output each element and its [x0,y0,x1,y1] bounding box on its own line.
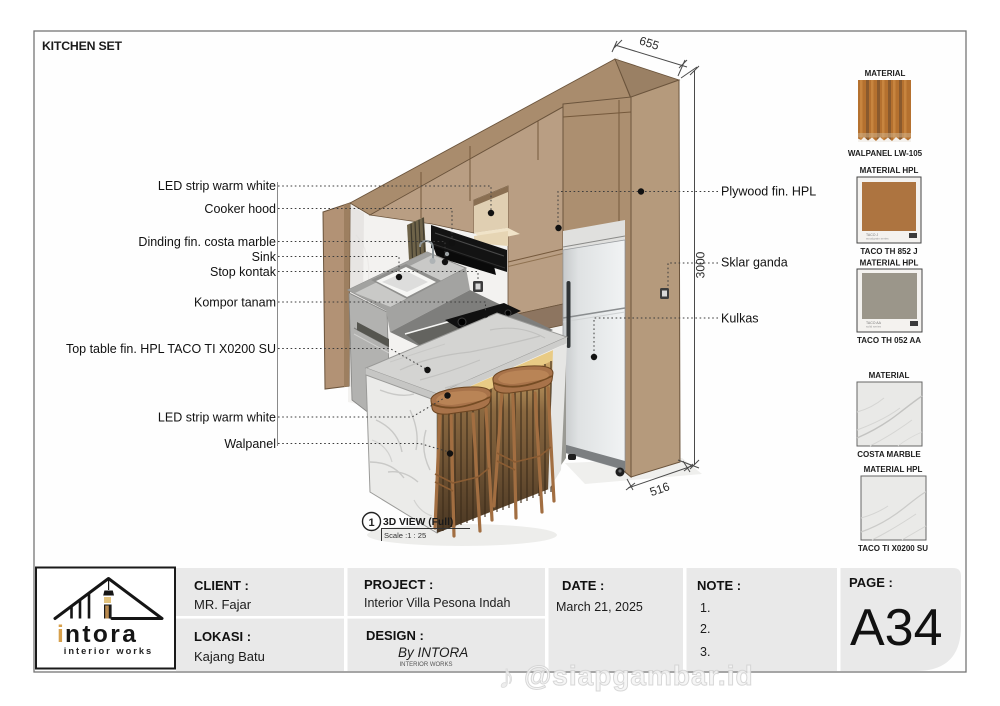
svg-text:Dinding fin. costa marble: Dinding fin. costa marble [138,235,276,249]
svg-text:PROJECT :: PROJECT : [364,577,433,592]
svg-text:A34: A34 [850,599,943,657]
svg-text:Scale :1 : 25: Scale :1 : 25 [384,531,426,540]
svg-text:By INTORA: By INTORA [398,645,468,660]
svg-text:3D VIEW (Full): 3D VIEW (Full) [383,517,453,528]
svg-text:Interior Villa Pesona Indah: Interior Villa Pesona Indah [364,596,510,610]
svg-text:DESIGN :: DESIGN : [366,628,424,643]
svg-text:PAGE :: PAGE : [849,575,893,590]
svg-text:Top table fin. HPL TACO TI X02: Top table fin. HPL TACO TI X0200 SU [66,342,276,356]
svg-text:KITCHEN SET: KITCHEN SET [42,39,122,53]
svg-text:i: i [57,621,64,648]
svg-text:Sink: Sink [252,250,277,264]
svg-text:TACO TI X0200 SU: TACO TI X0200 SU [858,544,928,553]
svg-text:INTERIOR WORKS: INTERIOR WORKS [399,662,452,668]
svg-text:Cooker hood: Cooker hood [204,202,276,216]
svg-text:interior works: interior works [64,646,153,656]
svg-text:Walpanel: Walpanel [224,437,276,451]
svg-text:CLIENT :: CLIENT : [194,578,249,593]
svg-text:@siapgambar.id: @siapgambar.id [524,660,754,691]
svg-text:WALPANEL LW-105: WALPANEL LW-105 [848,149,923,158]
svg-text:NOTE :: NOTE : [697,578,741,593]
svg-text:Kulkas: Kulkas [721,312,759,326]
svg-text:DATE :: DATE : [562,578,604,593]
svg-text:COSTA MARBLE: COSTA MARBLE [857,450,921,459]
svg-text:Stop kontak: Stop kontak [210,265,277,279]
svg-text:MATERIAL HPL: MATERIAL HPL [864,465,923,474]
svg-text:♪: ♪ [498,658,515,696]
svg-text:MATERIAL: MATERIAL [865,69,906,78]
svg-text:MATERIAL HPL: MATERIAL HPL [860,259,919,268]
svg-text:Sklar ganda: Sklar ganda [721,256,788,270]
svg-text:3000: 3000 [694,251,708,278]
svg-text:solid series: solid series [866,325,882,329]
svg-text:LED strip warm white: LED strip warm white [158,411,276,425]
svg-text:Kompor tanam: Kompor tanam [194,296,276,310]
svg-text:1: 1 [368,517,374,529]
svg-text:LED strip warm white: LED strip warm white [158,179,276,193]
svg-text:TACO TH 052 AA: TACO TH 052 AA [857,336,921,345]
svg-text:LOKASI :: LOKASI : [194,629,251,644]
svg-text:MR. Fajar: MR. Fajar [194,597,252,612]
svg-text:Kajang Batu: Kajang Batu [194,649,265,664]
svg-text:1.: 1. [700,601,710,615]
svg-text:3.: 3. [700,645,710,659]
svg-text:2.: 2. [700,622,710,636]
svg-text:MATERIAL: MATERIAL [869,371,910,380]
svg-text:Plywood fin. HPL: Plywood fin. HPL [721,185,816,199]
svg-text:woodgrain series: woodgrain series [866,237,889,241]
svg-text:MATERIAL HPL: MATERIAL HPL [860,166,919,175]
svg-text:March 21, 2025: March 21, 2025 [556,600,643,614]
svg-text:ntora: ntora [65,621,138,648]
svg-text:TACO TH 852 J: TACO TH 852 J [860,247,917,256]
